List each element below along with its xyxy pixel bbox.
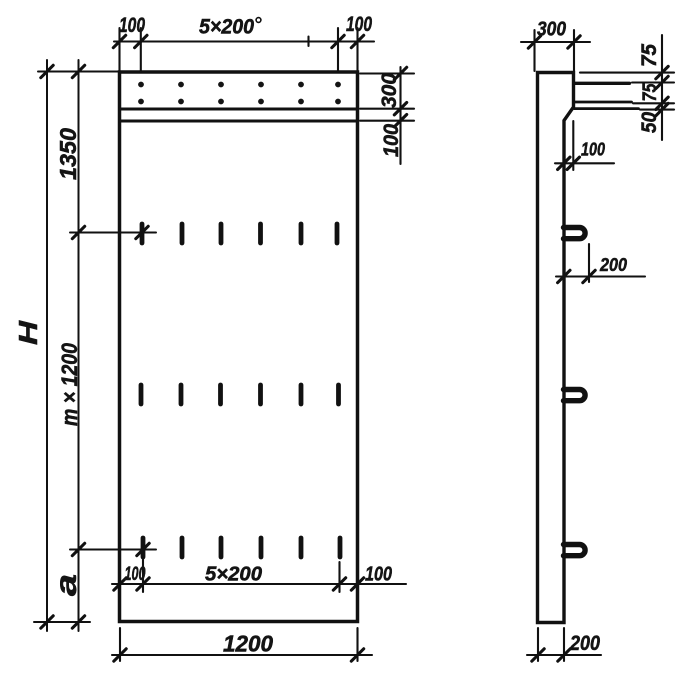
svg-text:100: 100 [119, 14, 145, 37]
svg-text:H: H [13, 319, 43, 345]
svg-text:100: 100 [380, 124, 403, 157]
svg-text:1200: 1200 [223, 631, 273, 657]
svg-text:75: 75 [640, 83, 661, 101]
svg-text:1350: 1350 [55, 128, 81, 180]
svg-text:50: 50 [638, 112, 661, 133]
svg-text:300: 300 [537, 19, 566, 41]
svg-text:a: a [50, 574, 83, 596]
svg-text:5×200: 5×200 [199, 16, 254, 39]
svg-text:100: 100 [581, 140, 605, 160]
svg-text:100: 100 [365, 564, 392, 586]
svg-text:200: 200 [569, 632, 600, 655]
svg-text:200: 200 [599, 255, 627, 275]
svg-text:100: 100 [125, 564, 146, 585]
svg-text:m × 1200: m × 1200 [57, 342, 82, 426]
svg-text:75: 75 [638, 44, 661, 67]
svg-text:100: 100 [346, 13, 372, 36]
svg-text:5×200: 5×200 [205, 564, 262, 586]
svg-text:300: 300 [378, 73, 401, 108]
